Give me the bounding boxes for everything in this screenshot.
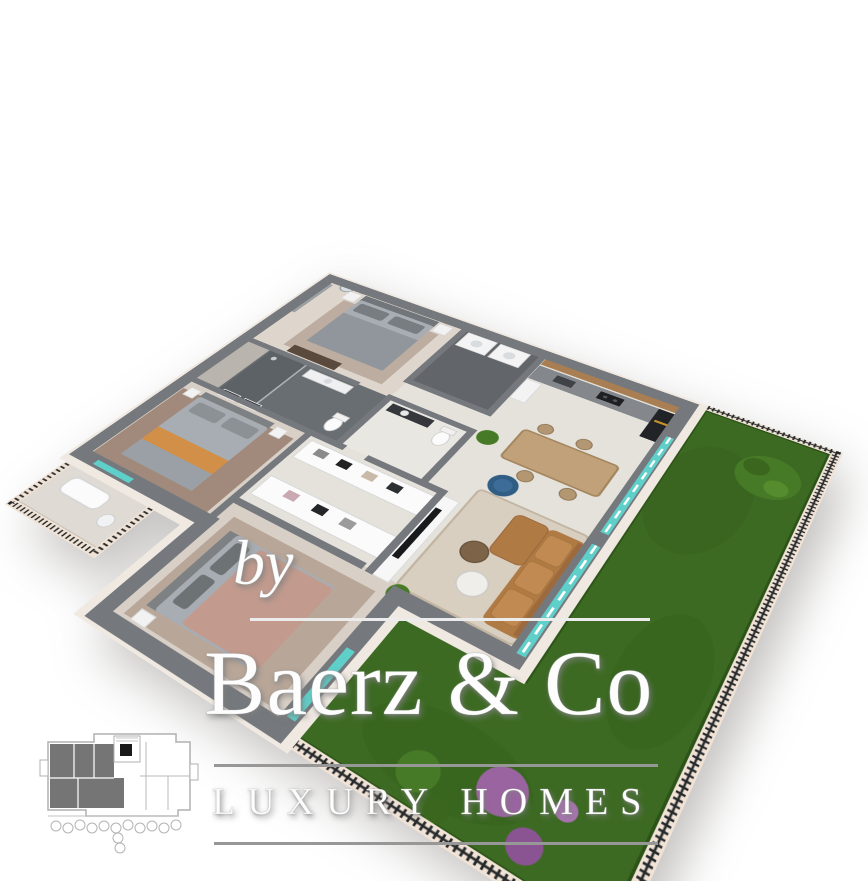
watermark-rule-bottom (214, 842, 658, 845)
watermark-rule-middle (214, 764, 658, 767)
unit-locator-plan (28, 720, 208, 865)
watermark-brand: Baerz & Co (204, 630, 653, 736)
watermark-by: by (233, 526, 293, 600)
watermark-tagline: LUXURY HOMES (212, 780, 653, 824)
real-estate-floorplan-image: by Baerz & Co LUXURY HOMES (0, 0, 868, 881)
elevator (120, 744, 132, 756)
highlighted-unit (50, 744, 124, 808)
watermark-rule-top (250, 618, 650, 621)
inset-bushes (51, 820, 181, 853)
